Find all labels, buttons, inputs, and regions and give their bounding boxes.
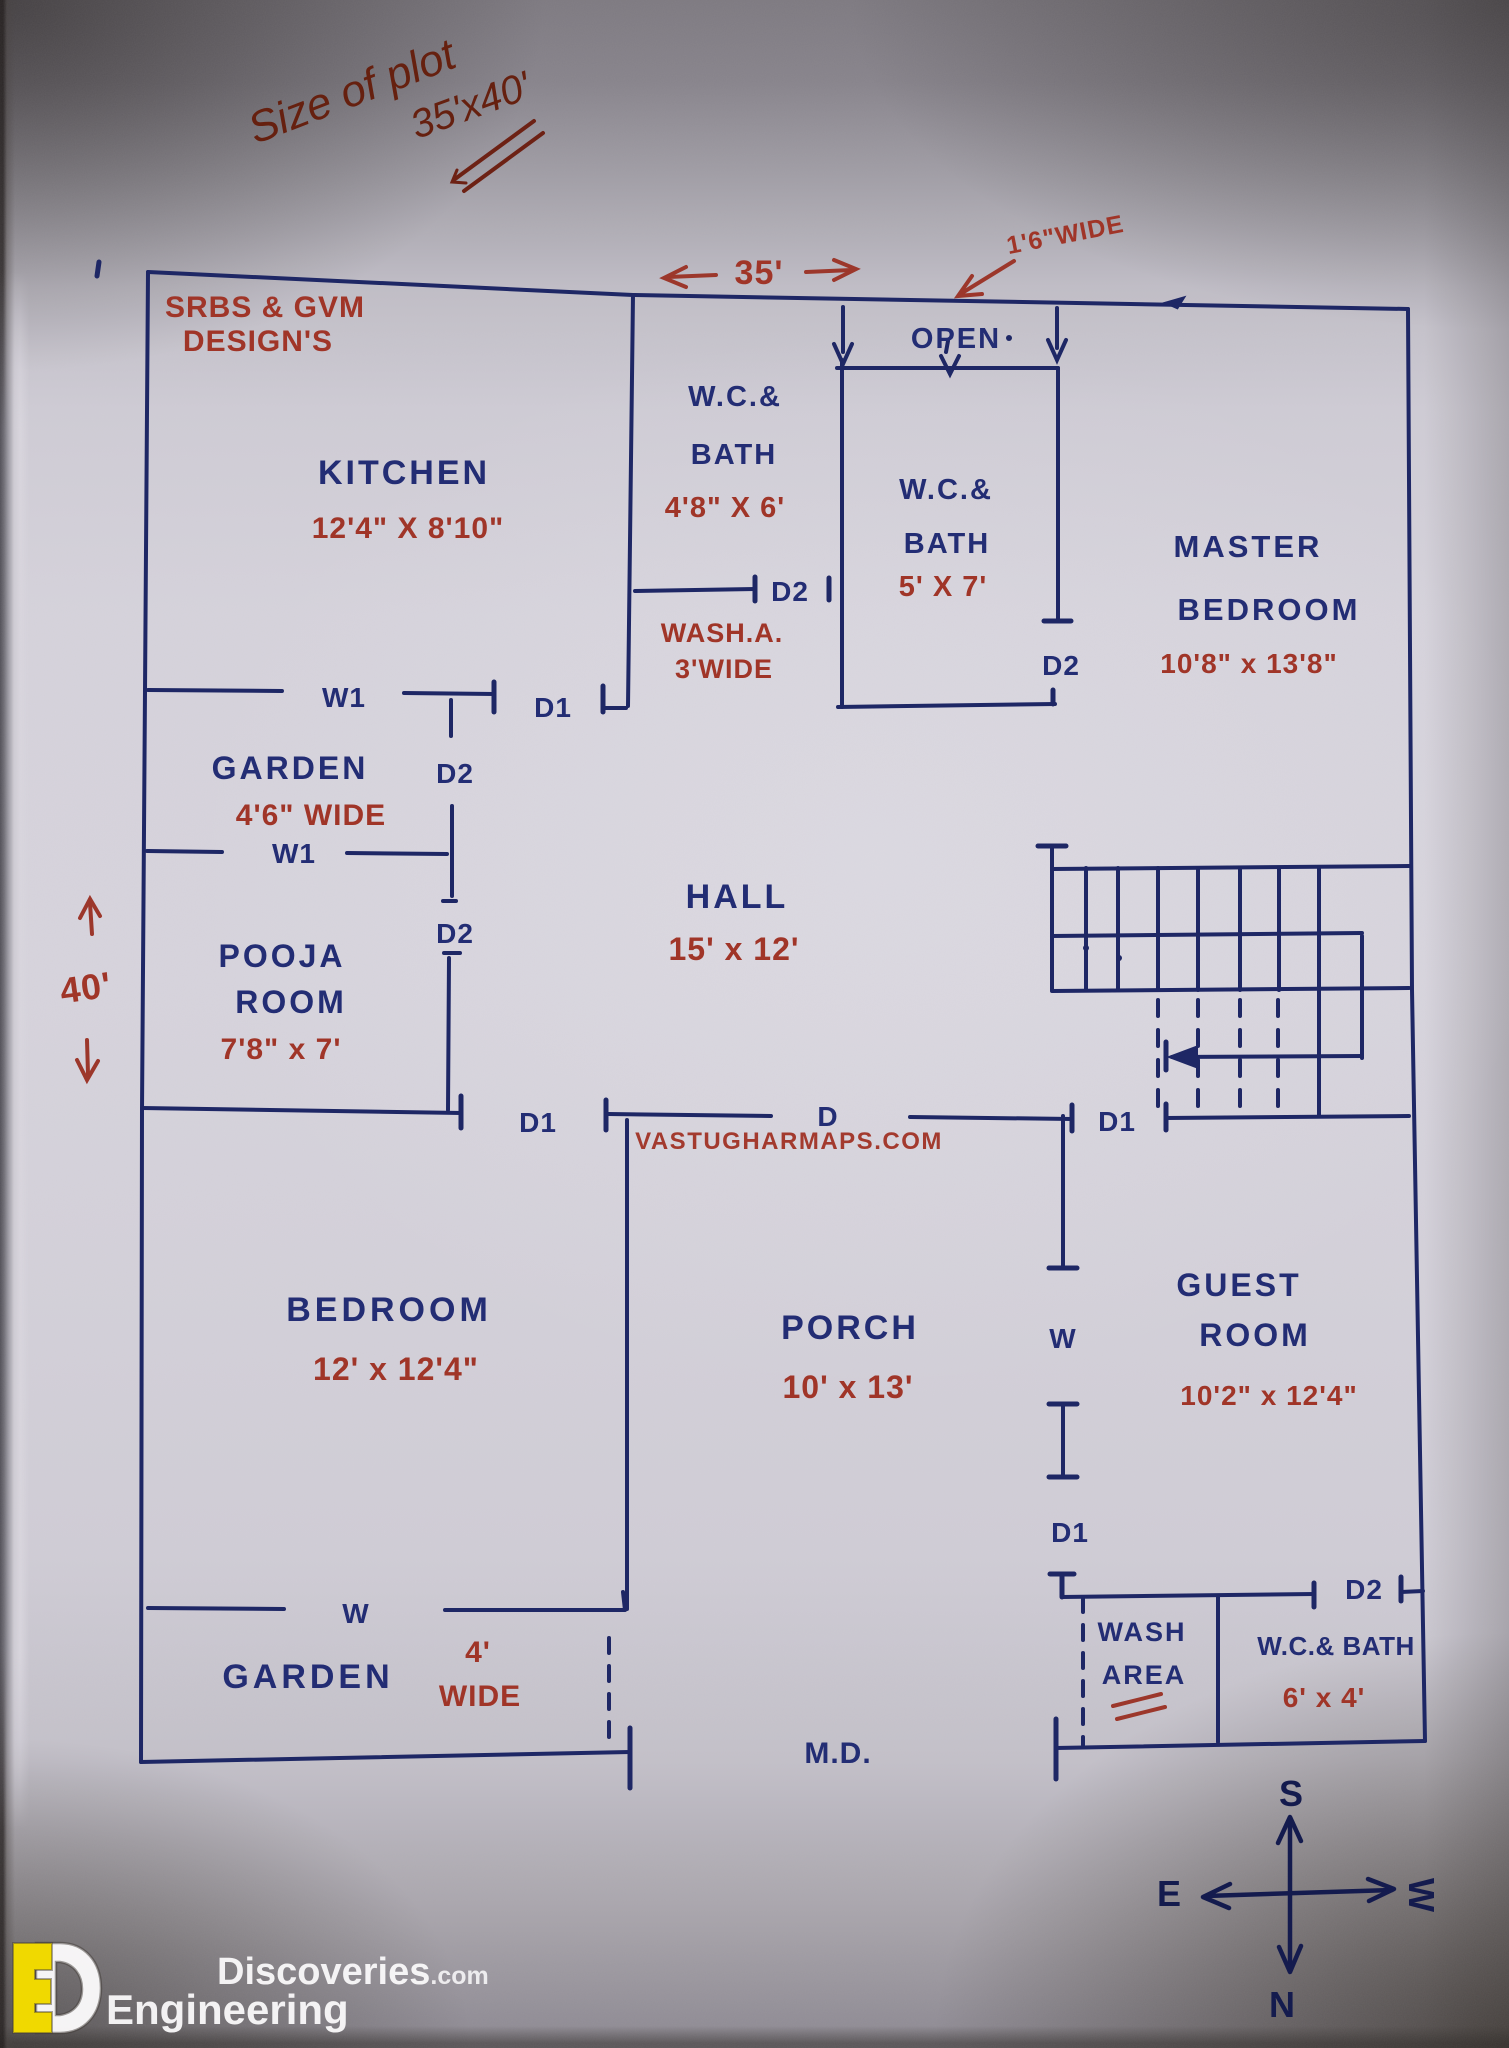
svg-text:GARDEN: GARDEN — [212, 750, 369, 786]
svg-text:15' x 12': 15' x 12' — [669, 931, 800, 967]
svg-text:6' x 4': 6' x 4' — [1283, 1682, 1366, 1713]
svg-text:D2: D2 — [771, 576, 809, 607]
svg-text:D1: D1 — [519, 1107, 557, 1138]
svg-text:D1: D1 — [1051, 1517, 1089, 1548]
svg-text:DESIGN'S: DESIGN'S — [183, 325, 333, 358]
svg-text:W: W — [1049, 1323, 1076, 1354]
svg-text:BEDROOM: BEDROOM — [286, 1291, 492, 1329]
svg-text:OPEN: OPEN — [911, 323, 1001, 355]
svg-text:10' x 13': 10' x 13' — [783, 1369, 914, 1405]
svg-text:12' x 12'4": 12' x 12'4" — [313, 1351, 479, 1387]
svg-text:ROOM: ROOM — [1199, 1317, 1311, 1353]
svg-text:ROOM: ROOM — [235, 984, 347, 1020]
svg-text:VASTUGHARMAPS.COM: VASTUGHARMAPS.COM — [635, 1128, 943, 1155]
svg-text:10'8" x 13'8": 10'8" x 13'8" — [1160, 648, 1337, 679]
svg-text:D1: D1 — [534, 692, 572, 723]
svg-text:E: E — [1157, 1873, 1181, 1914]
svg-text:SRBS & GVM: SRBS & GVM — [165, 291, 365, 324]
svg-text:12'4" X 8'10": 12'4" X 8'10" — [312, 512, 505, 545]
svg-text:W.C.&: W.C.& — [899, 474, 993, 506]
svg-text:7'8" x 7': 7'8" x 7' — [221, 1033, 342, 1066]
svg-text:WASH.A.: WASH.A. — [661, 618, 784, 648]
svg-text:PORCH: PORCH — [781, 1309, 919, 1347]
svg-text:5' X 7': 5' X 7' — [899, 571, 988, 603]
svg-text:GARDEN: GARDEN — [222, 1658, 393, 1696]
svg-text:BATH: BATH — [904, 528, 990, 560]
svg-text:4': 4' — [465, 1636, 491, 1669]
svg-text:KITCHEN: KITCHEN — [318, 454, 490, 492]
svg-text:35': 35' — [735, 254, 784, 292]
svg-text:BEDROOM: BEDROOM — [1178, 592, 1361, 627]
svg-text:4'8" X 6': 4'8" X 6' — [665, 492, 785, 524]
svg-text:WIDE: WIDE — [439, 1680, 521, 1713]
svg-text:10'2" x 12'4": 10'2" x 12'4" — [1180, 1380, 1357, 1411]
svg-text:AREA: AREA — [1102, 1660, 1187, 1690]
svg-text:N: N — [1269, 1984, 1295, 2025]
svg-text:WASH: WASH — [1098, 1617, 1187, 1647]
svg-text:W: W — [1401, 1878, 1442, 1912]
svg-text:GUEST: GUEST — [1176, 1267, 1301, 1303]
svg-text:HALL: HALL — [686, 878, 789, 916]
svg-text:D2: D2 — [436, 918, 474, 949]
svg-text:W.C.&: W.C.& — [688, 381, 782, 413]
svg-text:W: W — [342, 1598, 369, 1629]
svg-text:40': 40' — [57, 964, 114, 1012]
svg-text:BATH: BATH — [691, 439, 777, 471]
svg-text:D1: D1 — [1098, 1106, 1136, 1137]
svg-text:W1: W1 — [272, 838, 316, 869]
svg-text:3'WIDE: 3'WIDE — [675, 654, 773, 684]
svg-text:W1: W1 — [322, 682, 366, 713]
svg-text:POOJA: POOJA — [218, 938, 345, 974]
svg-text:M.D.: M.D. — [804, 1737, 871, 1770]
svg-text:W.C.& BATH: W.C.& BATH — [1257, 1631, 1415, 1661]
svg-text:D2: D2 — [436, 758, 474, 789]
svg-text:4'6" WIDE: 4'6" WIDE — [236, 799, 386, 832]
svg-text:S: S — [1279, 1773, 1303, 1814]
svg-text:Engineering: Engineering — [106, 1986, 349, 2033]
svg-text:D2: D2 — [1345, 1574, 1383, 1605]
svg-text:MASTER: MASTER — [1174, 529, 1323, 564]
svg-text:D2: D2 — [1042, 650, 1080, 681]
